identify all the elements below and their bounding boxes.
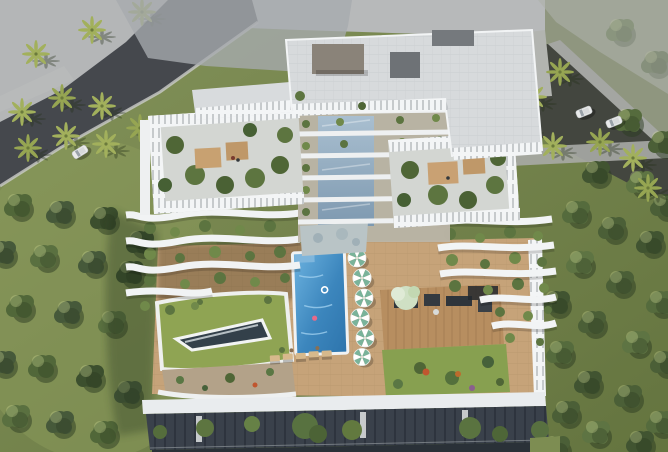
person	[236, 158, 240, 162]
shade-canopy	[463, 157, 486, 174]
shade-canopy	[194, 147, 221, 168]
west-fascia	[140, 120, 150, 215]
roof-plant-box	[390, 52, 420, 78]
deck-garden	[382, 344, 510, 396]
person	[446, 176, 450, 180]
shade-canopy	[226, 141, 249, 160]
lower-floors	[142, 392, 549, 452]
deck-lawn	[382, 344, 510, 396]
roof-plant	[295, 91, 305, 101]
roof-plant	[358, 102, 366, 110]
swimming-pool	[292, 251, 348, 355]
roof-plant-box	[312, 44, 364, 74]
wing-roof-garden-left	[140, 106, 304, 215]
roof-plant-box	[432, 30, 474, 46]
render-viewport	[0, 0, 668, 452]
sofa	[424, 294, 440, 306]
pool-water	[292, 251, 348, 355]
roof-box-shadow	[316, 70, 368, 76]
aerial-render	[0, 0, 668, 452]
coffee-table	[433, 309, 439, 315]
shade-canopy	[427, 161, 458, 185]
person	[231, 156, 235, 160]
grass-bottom-right	[530, 436, 560, 452]
